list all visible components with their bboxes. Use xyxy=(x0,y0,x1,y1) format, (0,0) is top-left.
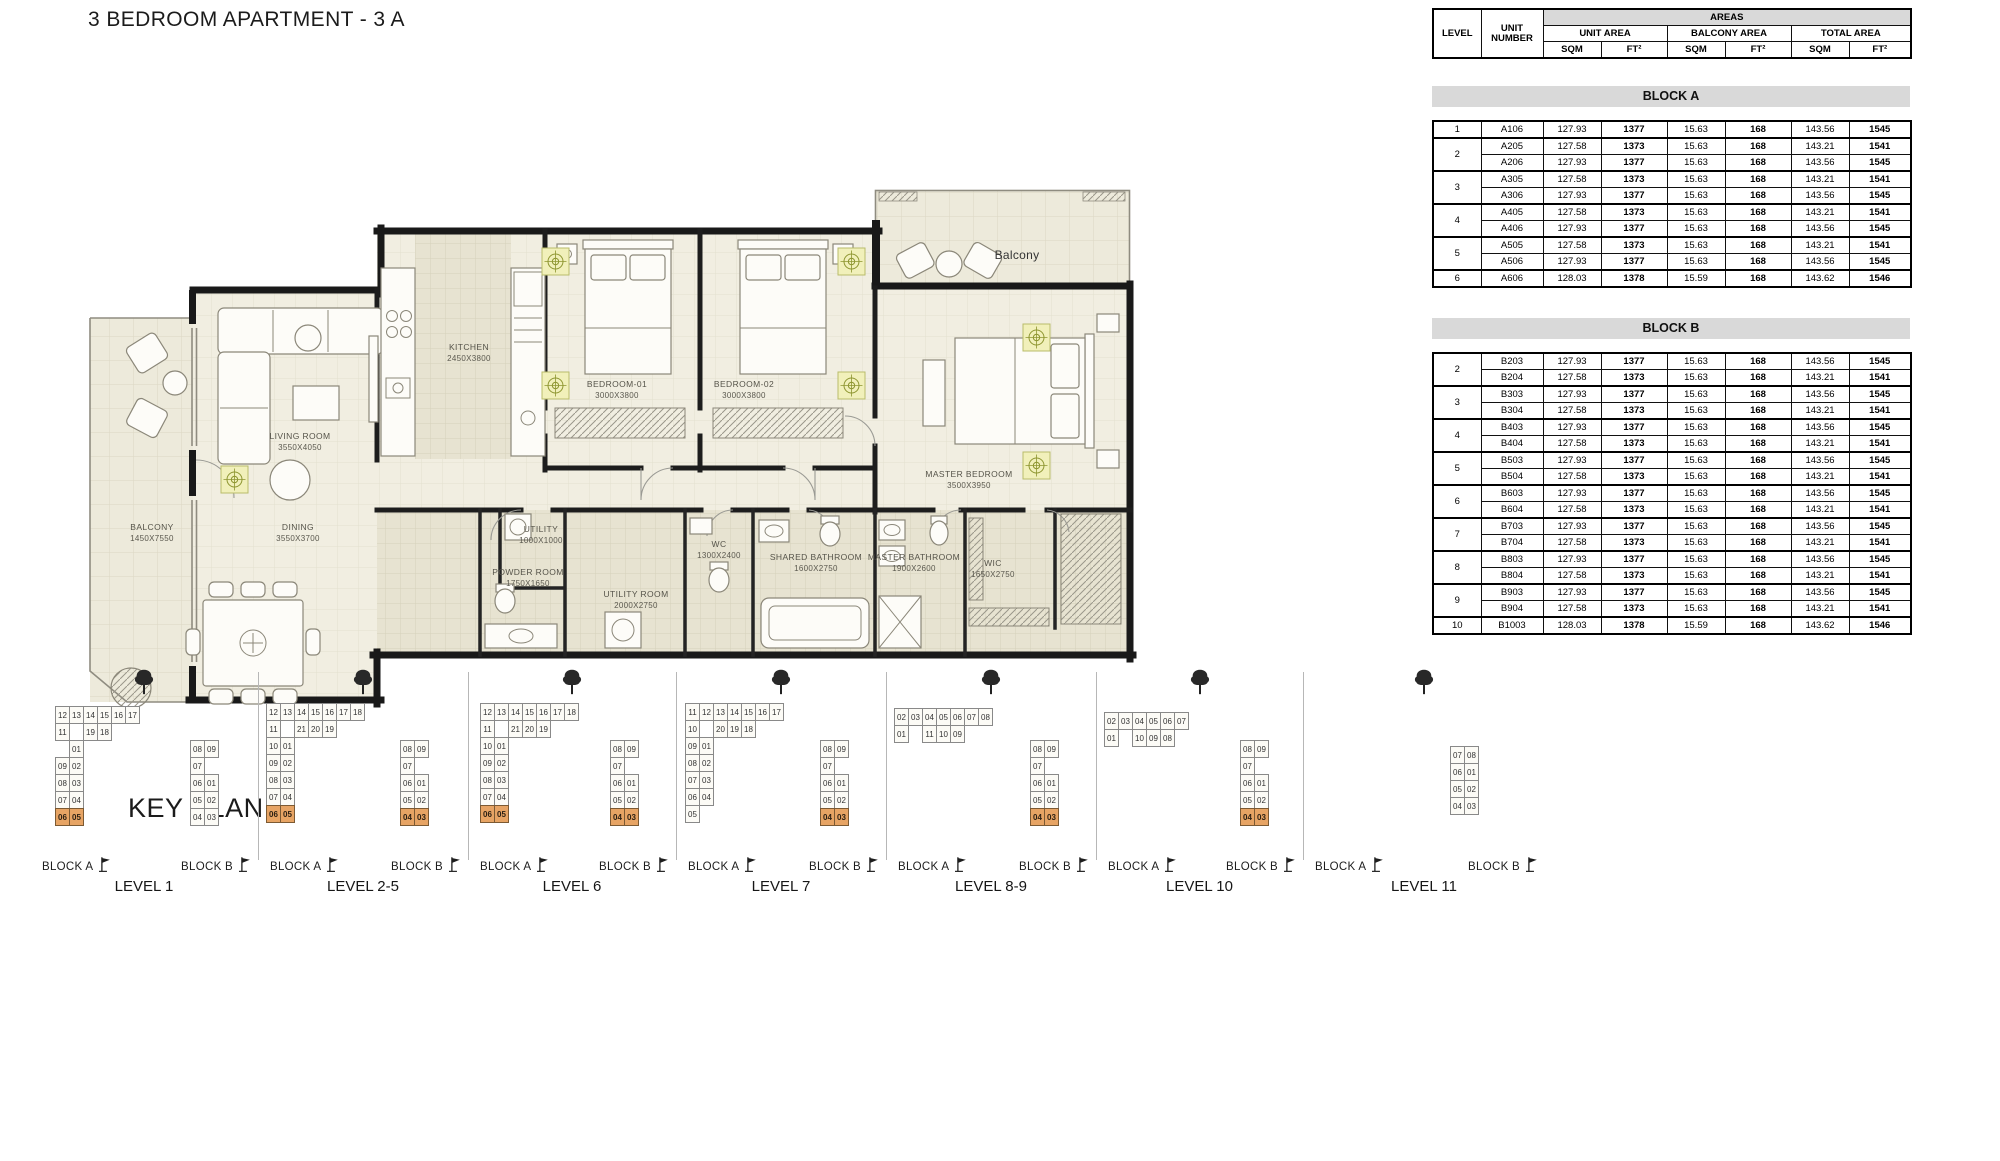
unit-cell: 14 xyxy=(727,703,742,721)
value-cell: 143.21 xyxy=(1791,535,1849,552)
value-cell: 127.58 xyxy=(1543,535,1601,552)
value-cell: 127.93 xyxy=(1543,485,1601,502)
room-dims: 1600X2750 xyxy=(794,564,838,573)
value-cell: 15.63 xyxy=(1667,452,1725,469)
unit-cell: 01 xyxy=(204,774,219,792)
block-b-label: BLOCK B xyxy=(1226,861,1278,873)
unit-cell: 01 xyxy=(834,774,849,792)
flag-icon xyxy=(1372,856,1385,873)
unit-cell: 07 xyxy=(1450,746,1465,764)
unit-cell: A506 xyxy=(1481,254,1543,271)
unit-cell: 09 xyxy=(1044,740,1059,758)
value-cell: 168 xyxy=(1725,436,1791,453)
unit-cell: 05 xyxy=(1146,712,1161,730)
value-cell: 1545 xyxy=(1849,254,1911,271)
keyplan-row: 0403 xyxy=(400,808,428,825)
table-row: 4A405127.58137315.63168143.211541 xyxy=(1433,204,1911,221)
level-label: LEVEL 7 xyxy=(676,878,886,895)
keyplan-mini-plan: 0203040506070801111009 xyxy=(894,708,992,742)
level-label: LEVEL 10 xyxy=(1096,878,1303,895)
block-b-label: BLOCK B xyxy=(809,861,861,873)
tree xyxy=(561,668,583,700)
value-cell: 1373 xyxy=(1601,535,1667,552)
keyplan-row: 11212019 xyxy=(266,720,364,737)
unit-cell: 20 xyxy=(522,720,537,738)
flag-icon xyxy=(449,856,462,873)
keyplan-row: 121314151617 xyxy=(55,706,139,723)
room-label: BALCONY xyxy=(130,522,173,532)
block-table: 1A106127.93137715.63168143.5615452A20512… xyxy=(1432,120,1912,288)
level-cell: 6 xyxy=(1433,270,1481,287)
keyplan-row: 0502 xyxy=(820,791,848,808)
unit-cell: 11 xyxy=(685,703,700,721)
value-cell: 168 xyxy=(1725,155,1791,172)
keyplan-row: 0502 xyxy=(1450,780,1478,797)
unit-cell: 07 xyxy=(1030,757,1045,775)
unit-cell: 10 xyxy=(266,737,281,755)
block-b-label: BLOCK B xyxy=(391,861,443,873)
unit-cell: 07 xyxy=(1240,757,1255,775)
unit-cell: 05 xyxy=(494,805,509,823)
block-a-caption: BLOCK A xyxy=(898,856,968,873)
block-b-label: BLOCK B xyxy=(1468,861,1520,873)
unit-cell: 06 xyxy=(1160,712,1175,730)
keyplan-row: 0403 xyxy=(1450,797,1478,814)
col-area-group: UNIT AREA xyxy=(1543,26,1667,42)
unit-cell: B903 xyxy=(1481,584,1543,601)
value-cell: 1541 xyxy=(1849,171,1911,188)
value-cell: 15.63 xyxy=(1667,568,1725,585)
table-row: B704127.58137315.63168143.211541 xyxy=(1433,535,1911,552)
unit-cell: A406 xyxy=(1481,221,1543,238)
unit-cell: 01 xyxy=(1254,774,1269,792)
value-cell: 143.21 xyxy=(1791,469,1849,486)
col-sqm: SQM xyxy=(1667,42,1725,59)
value-cell: 15.63 xyxy=(1667,419,1725,436)
value-cell: 1377 xyxy=(1601,584,1667,601)
table-row: A406127.93137715.63168143.561545 xyxy=(1433,221,1911,238)
room-dims: 1900X2600 xyxy=(892,564,936,573)
value-cell: 127.58 xyxy=(1543,204,1601,221)
unit-cell: 10 xyxy=(936,725,951,743)
unit-cell: 09 xyxy=(414,740,429,758)
value-cell: 15.63 xyxy=(1667,584,1725,601)
tree-icon xyxy=(980,668,1002,695)
unit-cell: 09 xyxy=(1254,740,1269,758)
keyplan-row: 0704 xyxy=(266,788,364,805)
value-cell: 15.63 xyxy=(1667,188,1725,205)
unit-cell: B404 xyxy=(1481,436,1543,453)
value-cell: 1541 xyxy=(1849,568,1911,585)
keyplan-row: 0902 xyxy=(55,757,139,774)
block-a-label: BLOCK A xyxy=(42,861,93,873)
room-dims: 2450X3800 xyxy=(447,354,491,363)
keyplan-group: 1213141516171811212019100109020803070406… xyxy=(468,668,676,906)
keyplan-row: 0809 xyxy=(190,740,218,757)
value-cell: 143.21 xyxy=(1791,138,1849,155)
value-cell: 15.63 xyxy=(1667,204,1725,221)
unit-cell: 12 xyxy=(699,703,714,721)
unit-cell: 20 xyxy=(713,720,728,738)
value-cell: 143.56 xyxy=(1791,485,1849,502)
unit-cell: 08 xyxy=(480,771,495,789)
value-cell: 143.62 xyxy=(1791,617,1849,634)
keyplan-row: 02030405060708 xyxy=(894,708,992,725)
unit-cell: 13 xyxy=(713,703,728,721)
unit-cell: 04 xyxy=(1450,797,1465,815)
unit-cell: 16 xyxy=(536,703,551,721)
value-cell: 1377 xyxy=(1601,518,1667,535)
unit-cell: 09 xyxy=(55,757,70,775)
value-cell: 127.93 xyxy=(1543,121,1601,138)
unit-cell: 01 xyxy=(494,737,509,755)
value-cell: 168 xyxy=(1725,403,1791,420)
block-b-caption: BLOCK B xyxy=(809,856,880,873)
unit-cell: 08 xyxy=(1464,746,1479,764)
unit-cell: 20 xyxy=(308,720,323,738)
unit-cell: A305 xyxy=(1481,171,1543,188)
unit-cell: 06 xyxy=(266,805,281,823)
room-dims: 1750X1650 xyxy=(506,579,550,588)
value-cell: 127.58 xyxy=(1543,502,1601,519)
room-label: MASTER BATHROOM xyxy=(868,552,960,562)
unit-cell: 07 xyxy=(480,788,495,806)
keyplan-row: 0708 xyxy=(1450,746,1478,763)
value-cell: 1373 xyxy=(1601,601,1667,618)
keyplan-row: 07 xyxy=(610,757,638,774)
unit-cell: 13 xyxy=(69,706,84,724)
value-cell: 127.58 xyxy=(1543,469,1601,486)
unit-cell: A306 xyxy=(1481,188,1543,205)
value-cell: 1373 xyxy=(1601,403,1667,420)
table-row: B204127.58137315.63168143.211541 xyxy=(1433,370,1911,387)
table-row: A506127.93137715.63168143.561545 xyxy=(1433,254,1911,271)
col-areas: AREAS xyxy=(1543,9,1911,26)
keyplan-row: 12131415161718 xyxy=(266,703,364,720)
value-cell: 168 xyxy=(1725,502,1791,519)
keyplan-row: 01100908 xyxy=(1104,729,1188,746)
block-b-caption: BLOCK B xyxy=(1468,856,1539,873)
unit-cell: 04 xyxy=(699,788,714,806)
unit-cell: 11 xyxy=(266,720,281,738)
value-cell: 1546 xyxy=(1849,617,1911,634)
unit-cell: 05 xyxy=(610,791,625,809)
value-cell: 15.63 xyxy=(1667,221,1725,238)
flag-icon xyxy=(1077,856,1090,873)
value-cell: 1545 xyxy=(1849,353,1911,370)
keyplan-mini-plan: 080907060105020403 xyxy=(1030,740,1058,825)
value-cell: 168 xyxy=(1725,452,1791,469)
value-cell: 1373 xyxy=(1601,204,1667,221)
unit-cell: B804 xyxy=(1481,568,1543,585)
value-cell: 127.93 xyxy=(1543,584,1601,601)
unit-cell: B304 xyxy=(1481,403,1543,420)
unit-cell: B204 xyxy=(1481,370,1543,387)
value-cell: 143.21 xyxy=(1791,403,1849,420)
value-cell: 127.93 xyxy=(1543,518,1601,535)
tree xyxy=(1413,668,1435,700)
unit-cell: 08 xyxy=(1160,729,1175,747)
value-cell: 1545 xyxy=(1849,419,1911,436)
value-cell: 1541 xyxy=(1849,469,1911,486)
keyplan-row: 0403 xyxy=(190,808,218,825)
keyplan-row: 0403 xyxy=(1240,808,1268,825)
unit-cell: 03 xyxy=(1464,797,1479,815)
value-cell: 15.63 xyxy=(1667,353,1725,370)
value-cell: 168 xyxy=(1725,386,1791,403)
value-cell: 168 xyxy=(1725,171,1791,188)
unit-cell: 07 xyxy=(610,757,625,775)
unit-cell: A405 xyxy=(1481,204,1543,221)
value-cell: 168 xyxy=(1725,237,1791,254)
room-label: BEDROOM-01 xyxy=(587,379,647,389)
value-cell: 143.56 xyxy=(1791,188,1849,205)
value-cell: 143.56 xyxy=(1791,254,1849,271)
keyplan-group: 1213141516171811212019100109020803070406… xyxy=(258,668,468,906)
value-cell: 143.56 xyxy=(1791,584,1849,601)
block-b-caption: BLOCK B xyxy=(391,856,462,873)
unit-cell: 10 xyxy=(685,720,700,738)
unit-cell: 04 xyxy=(922,708,937,726)
unit-cell: A505 xyxy=(1481,237,1543,254)
keyplan-row: 07 xyxy=(1240,757,1268,774)
value-cell: 15.59 xyxy=(1667,270,1725,287)
unit-cell: 05 xyxy=(280,805,295,823)
value-cell: 143.56 xyxy=(1791,155,1849,172)
keyplan-row: 0809 xyxy=(820,740,848,757)
keyplan-row: 1001 xyxy=(266,737,364,754)
unit-cell: 04 xyxy=(1240,808,1255,826)
keyplan-row: 0601 xyxy=(400,774,428,791)
keyplan-row: 1001 xyxy=(480,737,578,754)
unit-cell: 03 xyxy=(69,774,84,792)
keyplan-group: 0708060105020403BLOCK ABLOCK BLEVEL 11 xyxy=(1303,668,1545,906)
keyplan-row: 0809 xyxy=(1240,740,1268,757)
keyplan-row: 0809 xyxy=(1030,740,1058,757)
unit-cell: 18 xyxy=(350,703,365,721)
value-cell: 1546 xyxy=(1849,270,1911,287)
room-dims: 1450X7550 xyxy=(130,534,174,543)
room-label: SHARED BATHROOM xyxy=(770,552,862,562)
tree-icon xyxy=(1413,668,1435,695)
block-b-caption: BLOCK B xyxy=(1226,856,1297,873)
value-cell: 15.63 xyxy=(1667,551,1725,568)
unit-cell: 01 xyxy=(69,740,84,758)
unit-cell: 05 xyxy=(190,791,205,809)
table-row: 4B403127.93137715.63168143.561545 xyxy=(1433,419,1911,436)
block-a-label: BLOCK A xyxy=(898,861,949,873)
table-row: 6B603127.93137715.63168143.561545 xyxy=(1433,485,1911,502)
room-label: DINING xyxy=(282,522,314,532)
value-cell: 127.58 xyxy=(1543,370,1601,387)
unit-cell: 08 xyxy=(55,774,70,792)
keyplan-row: 07 xyxy=(1030,757,1058,774)
tree xyxy=(980,668,1002,700)
col-area-group: BALCONY AREA xyxy=(1667,26,1791,42)
unit-cell: 01 xyxy=(414,774,429,792)
tree-icon xyxy=(770,668,792,695)
unit-cell: 08 xyxy=(266,771,281,789)
table-row: B804127.58137315.63168143.211541 xyxy=(1433,568,1911,585)
value-cell: 127.93 xyxy=(1543,419,1601,436)
col-ft2: FT² xyxy=(1601,42,1667,59)
keyplan-row: 11212019 xyxy=(480,720,578,737)
level-cell: 2 xyxy=(1433,138,1481,171)
keyplan-row: 0502 xyxy=(1030,791,1058,808)
value-cell: 15.63 xyxy=(1667,171,1725,188)
unit-cell: 07 xyxy=(964,708,979,726)
table-row: 2A205127.58137315.63168143.211541 xyxy=(1433,138,1911,155)
unit-cell: 03 xyxy=(834,808,849,826)
value-cell: 1541 xyxy=(1849,138,1911,155)
block-b-label: BLOCK B xyxy=(1019,861,1071,873)
value-cell: 127.93 xyxy=(1543,254,1601,271)
value-cell: 15.63 xyxy=(1667,485,1725,502)
table-row: B604127.58137315.63168143.211541 xyxy=(1433,502,1911,519)
keyplan-mini-plan: 1213141516171811212019100109020803070406… xyxy=(266,703,364,822)
value-cell: 168 xyxy=(1725,204,1791,221)
unit-cell: 06 xyxy=(610,774,625,792)
value-cell: 1541 xyxy=(1849,601,1911,618)
keyplan-row: 0605 xyxy=(55,808,139,825)
level-cell: 5 xyxy=(1433,452,1481,485)
floor-plan: KITCHEN2450X3800BEDROOM-013000X3800BEDRO… xyxy=(85,168,1145,716)
unit-cell: 11 xyxy=(55,723,70,741)
unit-cell: 02 xyxy=(1464,780,1479,798)
unit-cell: 08 xyxy=(685,754,700,772)
unit-cell: 12 xyxy=(55,706,70,724)
table-row: 1A106127.93137715.63168143.561545 xyxy=(1433,121,1911,138)
tree-icon xyxy=(561,668,583,695)
value-cell: 143.62 xyxy=(1791,270,1849,287)
room-label: MASTER BEDROOM xyxy=(925,469,1012,479)
unit-cell: 15 xyxy=(97,706,112,724)
unit-cell: 13 xyxy=(494,703,509,721)
unit-cell: 07 xyxy=(400,757,415,775)
value-cell: 15.63 xyxy=(1667,469,1725,486)
value-cell: 1377 xyxy=(1601,551,1667,568)
unit-cell: 06 xyxy=(1030,774,1045,792)
value-cell: 1545 xyxy=(1849,551,1911,568)
unit-cell: 09 xyxy=(266,754,281,772)
keyplan-row: 0502 xyxy=(190,791,218,808)
keyplan-row: 0809 xyxy=(610,740,638,757)
unit-cell: 01 xyxy=(894,725,909,743)
level-cell: 5 xyxy=(1433,237,1481,270)
keyplan-row: 0605 xyxy=(266,805,364,822)
unit-cell: 06 xyxy=(1240,774,1255,792)
keyplan-row: 07 xyxy=(820,757,848,774)
unit-cell: 19 xyxy=(727,720,742,738)
level-cell: 4 xyxy=(1433,204,1481,237)
value-cell: 143.56 xyxy=(1791,518,1849,535)
value-cell: 1545 xyxy=(1849,584,1911,601)
room-label: KITCHEN xyxy=(449,342,489,352)
value-cell: 1377 xyxy=(1601,419,1667,436)
table-row: B504127.58137315.63168143.211541 xyxy=(1433,469,1911,486)
value-cell: 127.58 xyxy=(1543,601,1601,618)
room-dims: 3500X3950 xyxy=(947,481,991,490)
unit-cell: B904 xyxy=(1481,601,1543,618)
value-cell: 127.93 xyxy=(1543,353,1601,370)
block-band: BLOCK B xyxy=(1432,318,1910,339)
unit-cell: 05 xyxy=(1240,791,1255,809)
unit-cell: 02 xyxy=(1104,712,1119,730)
unit-cell: 05 xyxy=(1030,791,1045,809)
unit-cell: 11 xyxy=(480,720,495,738)
table-row: B304127.58137315.63168143.211541 xyxy=(1433,403,1911,420)
value-cell: 1541 xyxy=(1849,237,1911,254)
keyplan-mini-plan: 1112131415161710201918090108020703060405 xyxy=(685,703,783,822)
unit-cell: 06 xyxy=(685,788,700,806)
unit-cell: B604 xyxy=(1481,502,1543,519)
value-cell: 1545 xyxy=(1849,155,1911,172)
unit-cell: 09 xyxy=(685,737,700,755)
block-b-caption: BLOCK B xyxy=(1019,856,1090,873)
col-level: LEVEL xyxy=(1433,9,1481,58)
unit-cell: 13 xyxy=(280,703,295,721)
tree xyxy=(1189,668,1211,700)
room-dims: 1000X1000 xyxy=(519,536,563,545)
block-a-label: BLOCK A xyxy=(270,861,321,873)
keyplan-row: 0703 xyxy=(685,771,783,788)
keyplan-mini-plan: 080907060105020403 xyxy=(820,740,848,825)
value-cell: 15.63 xyxy=(1667,237,1725,254)
level-cell: 3 xyxy=(1433,171,1481,204)
value-cell: 1541 xyxy=(1849,436,1911,453)
unit-cell: 06 xyxy=(190,774,205,792)
level-label: LEVEL 2-5 xyxy=(258,878,468,895)
unit-cell: 21 xyxy=(508,720,523,738)
table-row: 6A606128.03137815.59168143.621546 xyxy=(1433,270,1911,287)
value-cell: 1377 xyxy=(1601,188,1667,205)
unit-cell: 07 xyxy=(820,757,835,775)
keyplan-row: 12131415161718 xyxy=(480,703,578,720)
value-cell: 1377 xyxy=(1601,254,1667,271)
unit-cell: 18 xyxy=(564,703,579,721)
value-cell: 15.63 xyxy=(1667,121,1725,138)
keyplan-row: 05 xyxy=(685,805,783,822)
unit-cell: B603 xyxy=(1481,485,1543,502)
level-label: LEVEL 6 xyxy=(468,878,676,895)
value-cell: 168 xyxy=(1725,601,1791,618)
table-row: A306127.93137715.63168143.561545 xyxy=(1433,188,1911,205)
unit-cell: 08 xyxy=(610,740,625,758)
tree-icon xyxy=(1189,668,1211,695)
keyplan-row: 0901 xyxy=(685,737,783,754)
brochure-page: { "page": { "title": "3 BEDROOM APARTMEN… xyxy=(0,0,2000,1161)
value-cell: 1377 xyxy=(1601,353,1667,370)
value-cell: 143.56 xyxy=(1791,221,1849,238)
value-cell: 1545 xyxy=(1849,485,1911,502)
block-table: 2B203127.93137715.63168143.561545B204127… xyxy=(1432,352,1912,635)
page-title: 3 BEDROOM APARTMENT - 3 A xyxy=(88,8,405,32)
value-cell: 168 xyxy=(1725,469,1791,486)
unit-cell: 15 xyxy=(522,703,537,721)
value-cell: 168 xyxy=(1725,221,1791,238)
value-cell: 1377 xyxy=(1601,386,1667,403)
block-a-label: BLOCK A xyxy=(1315,861,1366,873)
keyplan-mini-plan: 02030405060701100908 xyxy=(1104,712,1188,746)
block-b-caption: BLOCK B xyxy=(181,856,252,873)
tree xyxy=(133,668,155,700)
keyplan-row: 0902 xyxy=(480,754,578,771)
keyplan-row: 0403 xyxy=(1030,808,1058,825)
level-cell: 2 xyxy=(1433,353,1481,386)
room-label: POWDER ROOM xyxy=(492,567,563,577)
flag-icon xyxy=(1284,856,1297,873)
tree-icon xyxy=(133,668,155,695)
